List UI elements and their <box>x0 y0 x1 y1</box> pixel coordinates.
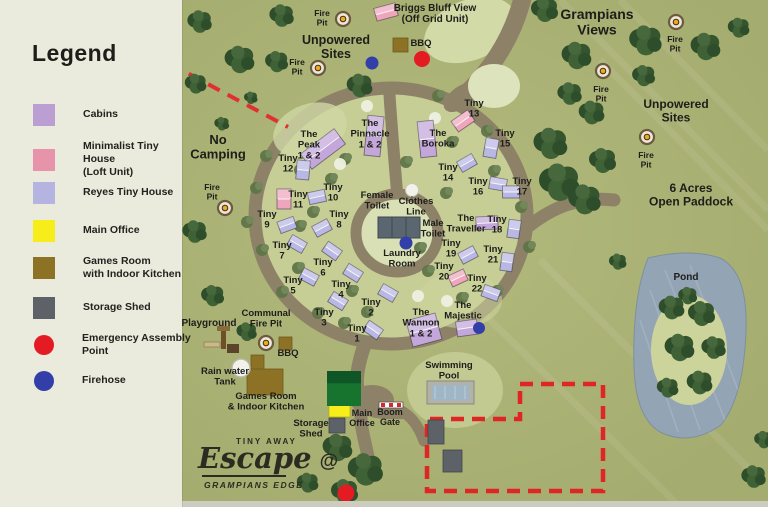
brand-underline <box>202 475 286 477</box>
paddock-shed-1 <box>428 420 444 444</box>
label-playground: Playground <box>181 318 236 329</box>
legend-item-firehose: Firehose <box>33 371 192 391</box>
white-marker <box>361 100 373 112</box>
white-marker <box>334 158 346 170</box>
emergency-marker <box>338 485 355 502</box>
legend-item-emergency: Emergency Assembly Point <box>33 332 192 358</box>
legend-panel: Legend CabinsMinimalist Tiny House (Loft… <box>0 0 182 507</box>
bbq-icon <box>393 38 408 52</box>
toilet-building <box>378 217 420 238</box>
legend-item-label: Firehose <box>82 374 192 387</box>
legend-item-reyes: Reyes Tiny House <box>33 182 193 204</box>
fire-pit-icon <box>596 64 610 78</box>
legend-swatch <box>33 297 55 319</box>
label-pond: Pond <box>674 272 699 283</box>
legend-swatch <box>34 335 54 355</box>
label-bbq-bottom: BBQ <box>277 348 298 359</box>
firehose-marker <box>473 322 485 334</box>
fire-pit-icon <box>311 61 325 75</box>
label-the-peak: ThePeak1 & 2 <box>298 129 321 161</box>
legend-item-minimalist: Minimalist Tiny House (Loft Unit) <box>33 140 193 179</box>
building-tiny-12 <box>296 160 311 180</box>
label-main-office: MainOffice <box>349 408 375 428</box>
shed-building <box>329 418 345 433</box>
label-male-toilet: MaleToilet <box>421 218 446 240</box>
fire-pit-icon <box>259 336 273 350</box>
label-games-room: Games Room& Indoor Kitchen <box>228 391 305 413</box>
legend-item-label: Reyes Tiny House <box>83 186 193 199</box>
legend-item-label: Cabins <box>83 108 193 121</box>
legend-item-label: Minimalist Tiny House (Loft Unit) <box>83 140 193 179</box>
building-tiny-15 <box>483 138 499 159</box>
swimming-pool-bld <box>427 381 474 404</box>
legend-item-label: Storage Shed <box>83 301 193 314</box>
white-marker <box>441 295 453 307</box>
emergency-marker <box>414 51 430 67</box>
brand-script: Escape <box>198 444 312 473</box>
label-female-toilet: FemaleToilet <box>361 190 394 212</box>
shed-building <box>428 420 444 444</box>
building-tiny-18 <box>507 219 521 238</box>
toilet-block <box>378 217 420 238</box>
legend-item-label: Emergency Assembly Point <box>82 332 192 358</box>
brand-logo: TINY AWAY Escape @ GRAMPIANS EDGE <box>198 437 338 490</box>
office-building <box>329 405 350 417</box>
center-path <box>389 87 397 192</box>
firehose-marker <box>366 57 379 70</box>
fire-pit-icon <box>336 12 350 26</box>
label-bbq-top: BBQ <box>410 38 431 49</box>
legend-item-label: Games Room with Indoor Kitchen <box>83 255 193 281</box>
legend-item-main: Main Office <box>33 220 193 242</box>
brand-subtitle: GRAMPIANS EDGE <box>204 480 338 490</box>
paddock-shed-2 <box>443 450 462 472</box>
fire-pit-icon <box>640 130 654 144</box>
brand-at-symbol: @ <box>320 451 339 473</box>
legend-item-label: Main Office <box>83 224 193 237</box>
legend-item-cabins: Cabins <box>33 104 193 126</box>
legend-item-storage: Storage Shed <box>33 297 193 319</box>
shed-building <box>443 450 462 472</box>
office-canopy <box>327 371 361 406</box>
fire-pit-icon <box>669 15 683 29</box>
clothes-line-icon <box>406 184 419 197</box>
fire-pit-icon <box>218 201 232 215</box>
playground-icon <box>204 342 220 347</box>
legend-swatch <box>33 182 55 204</box>
legend-swatch <box>33 220 55 242</box>
campground-map-image: Briggs Bluff View(Off Grid Unit)ThePeak1… <box>0 0 768 507</box>
label-boom-gate: BoomGate <box>377 407 403 427</box>
bbq-grill-top <box>393 38 408 52</box>
legend-swatch <box>34 371 54 391</box>
main-office-bld <box>329 405 350 417</box>
storage-shed-bld <box>329 418 345 433</box>
legend-swatch <box>33 104 55 126</box>
legend-item-games: Games Room with Indoor Kitchen <box>33 255 193 281</box>
legend-swatch <box>33 257 55 279</box>
building-tiny-21 <box>500 252 514 271</box>
white-marker <box>412 290 424 302</box>
label-briggs-bluff-view: Briggs Bluff View(Off Grid Unit) <box>394 3 477 25</box>
legend-title: Legend <box>32 40 117 67</box>
legend-swatch <box>33 149 55 171</box>
pool-water <box>432 385 469 400</box>
